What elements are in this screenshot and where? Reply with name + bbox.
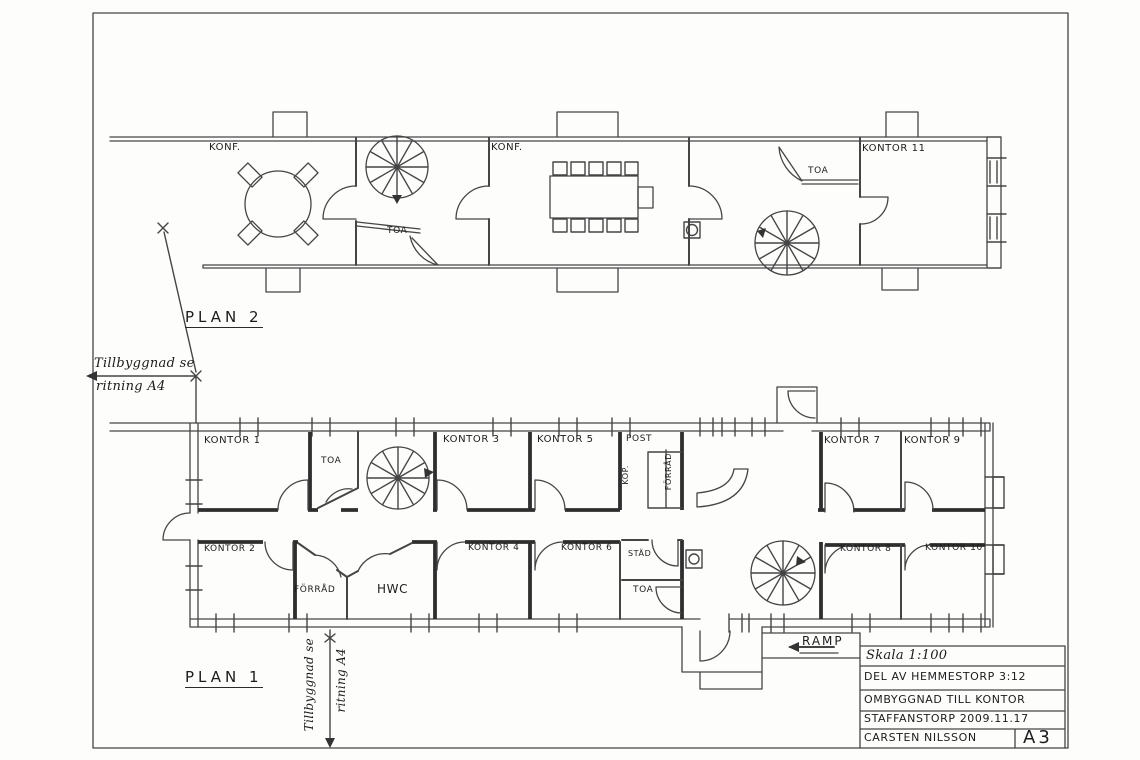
title-block-project: OMBYGGNAD TILL KONTOR	[864, 694, 1025, 705]
floor-plan-linework	[0, 0, 1140, 760]
drawing-sheet: KONF. TOA KONF. TOA KONTOR 11 PLAN 2 KON…	[0, 0, 1140, 760]
spiral-stair-icon	[366, 136, 428, 204]
room-label-kontor8: KONTOR 8	[840, 545, 891, 554]
room-label-kontor4: KONTOR 4	[468, 544, 519, 553]
room-label-forrad-lower: FÖRRÅD	[294, 586, 335, 595]
room-label-stad: STÄD	[628, 550, 651, 558]
spiral-stair-icon	[367, 447, 434, 509]
room-label-kontor10: KONTOR 10	[925, 544, 983, 553]
room-label-kontor5: KONTOR 5	[537, 435, 594, 445]
chairs	[238, 163, 318, 245]
room-label-konf-left: KONF.	[209, 143, 241, 153]
room-label-kontor3: KONTOR 3	[443, 435, 500, 445]
room-label-kontor11: KONTOR 11	[862, 144, 926, 154]
room-label-kontor6: KONTOR 6	[561, 544, 612, 553]
extension-note-bottom-line1: Tillbyggnad se	[303, 638, 315, 731]
room-label-konf-mid: KONF.	[491, 143, 523, 153]
room-label-toa-upper: TOA	[321, 457, 341, 466]
room-label-kontor2: KONTOR 2	[204, 545, 255, 554]
spiral-stair-icon	[751, 541, 815, 605]
room-label-toa-plan2-right: TOA	[808, 167, 828, 176]
sheet-border	[93, 13, 1068, 748]
room-label-toa-plan2-left: TOA	[387, 227, 407, 236]
plan2-title: PLAN 2	[185, 310, 263, 328]
room-label-kontor9: KONTOR 9	[904, 436, 961, 446]
extension-note-left-line2: ritning A4	[96, 380, 166, 393]
plan2-drawing	[110, 112, 1006, 292]
title-block-author: CARSTEN NILSSON	[864, 732, 977, 743]
title-block-property: DEL AV HEMMESTORP 3:12	[864, 671, 1026, 682]
round-table	[245, 171, 311, 237]
room-label-forrad-upper: FÖRRÅD	[665, 453, 673, 490]
spiral-stair-icon	[755, 211, 819, 275]
ramp-label: RAMP	[802, 635, 844, 647]
plan1-title: PLAN 1	[185, 670, 263, 688]
plan1-drawing	[110, 387, 1004, 689]
title-block-place-date: STAFFANSTORP 2009.11.17	[864, 713, 1029, 724]
extension-note-left-line1: Tillbyggnad se	[94, 357, 195, 370]
room-label-hwc: HWC	[377, 583, 408, 595]
extension-note-bottom-line2: ritning A4	[335, 648, 347, 713]
room-label-kop: KOP.	[622, 465, 630, 485]
room-label-kontor7: KONTOR 7	[824, 436, 881, 446]
room-label-post: POST	[626, 435, 652, 444]
title-block-scale: Skala 1:100	[866, 649, 947, 662]
title-block-format: A3	[1023, 729, 1053, 747]
room-label-kontor1: KONTOR 1	[204, 436, 261, 446]
room-label-toa-lower: TOA	[633, 586, 653, 595]
conference-table	[550, 162, 653, 232]
